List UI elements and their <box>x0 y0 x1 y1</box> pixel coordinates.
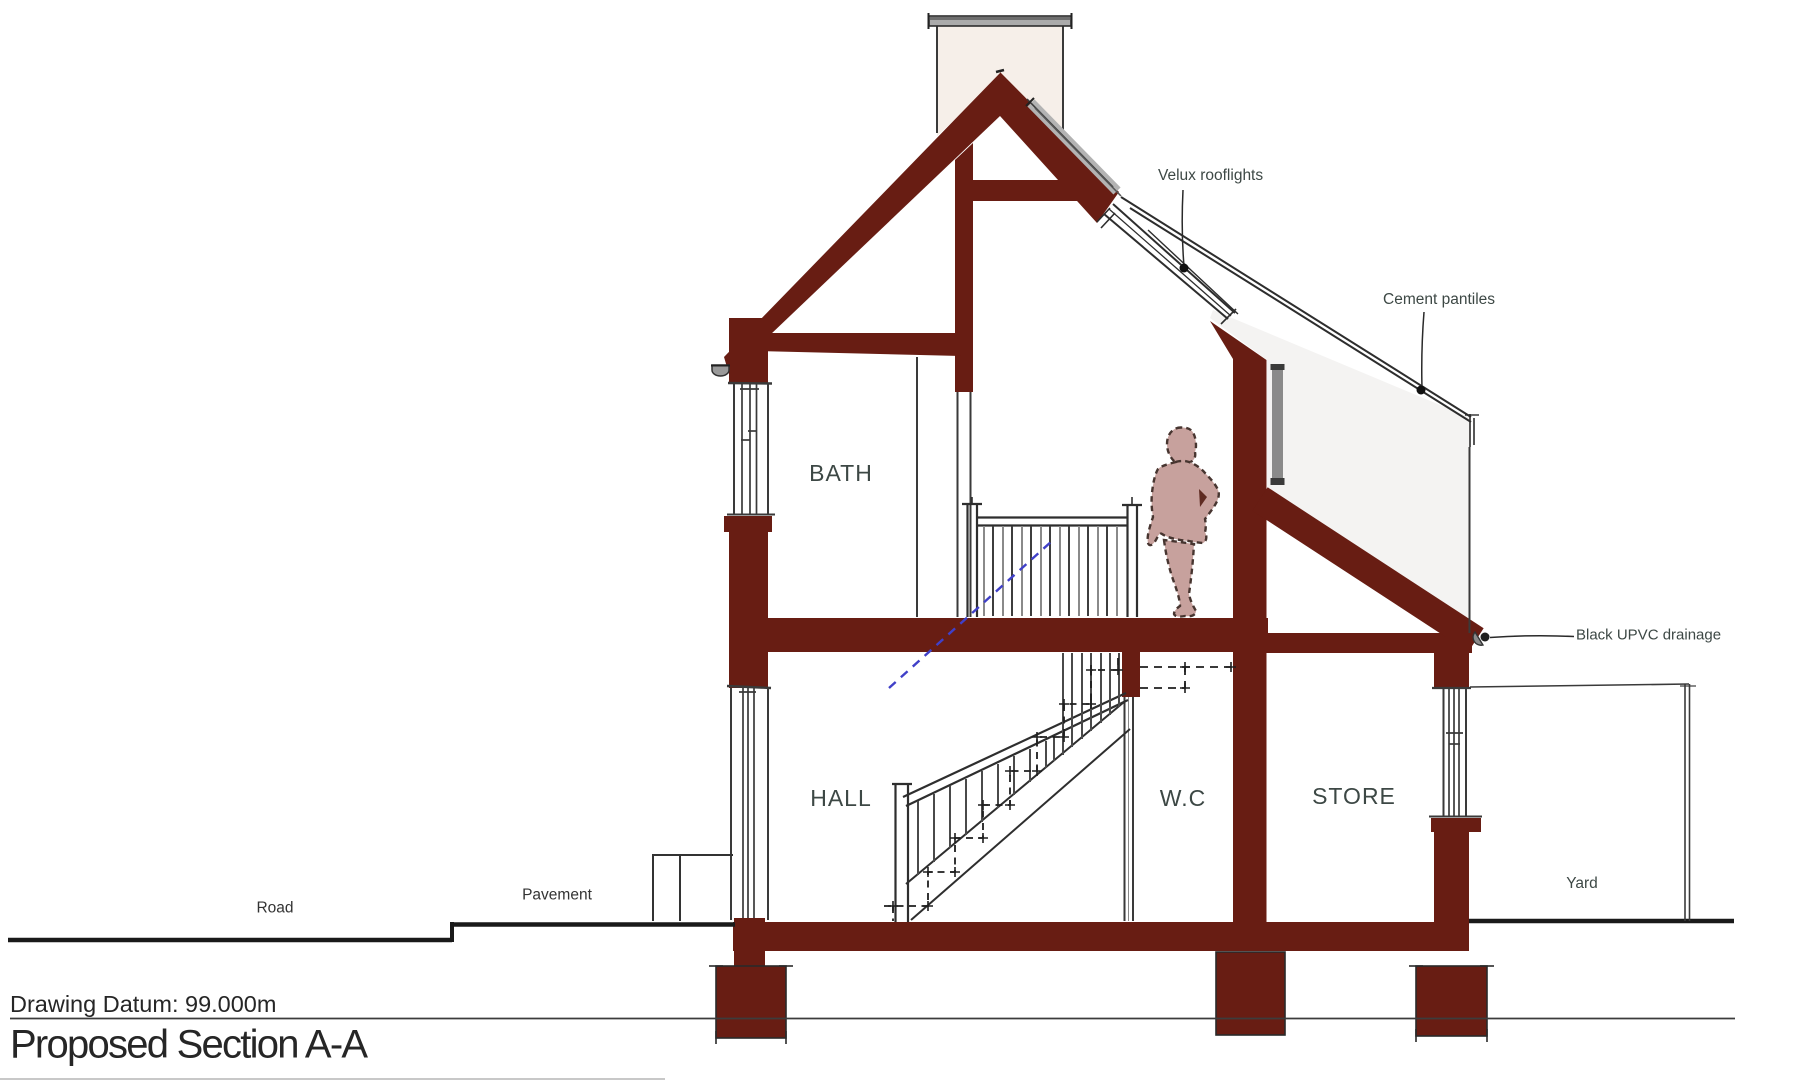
svg-text:Black UPVC drainage: Black UPVC drainage <box>1576 627 1721 644</box>
svg-text:Velux rooflights: Velux rooflights <box>1158 167 1263 184</box>
svg-text:Drawing Datum: 99.000m: Drawing Datum: 99.000m <box>10 991 276 1017</box>
svg-text:W.C: W.C <box>1160 785 1206 811</box>
svg-text:Cement pantiles: Cement pantiles <box>1383 291 1495 308</box>
svg-text:HALL: HALL <box>810 785 872 811</box>
svg-text:Yard: Yard <box>1566 875 1598 892</box>
svg-text:BATH: BATH <box>809 460 873 486</box>
svg-text:Pavement: Pavement <box>522 887 592 904</box>
svg-text:Proposed Section A-A: Proposed Section A-A <box>10 1023 368 1067</box>
svg-text:Road: Road <box>256 900 293 917</box>
svg-text:STORE: STORE <box>1312 783 1396 809</box>
